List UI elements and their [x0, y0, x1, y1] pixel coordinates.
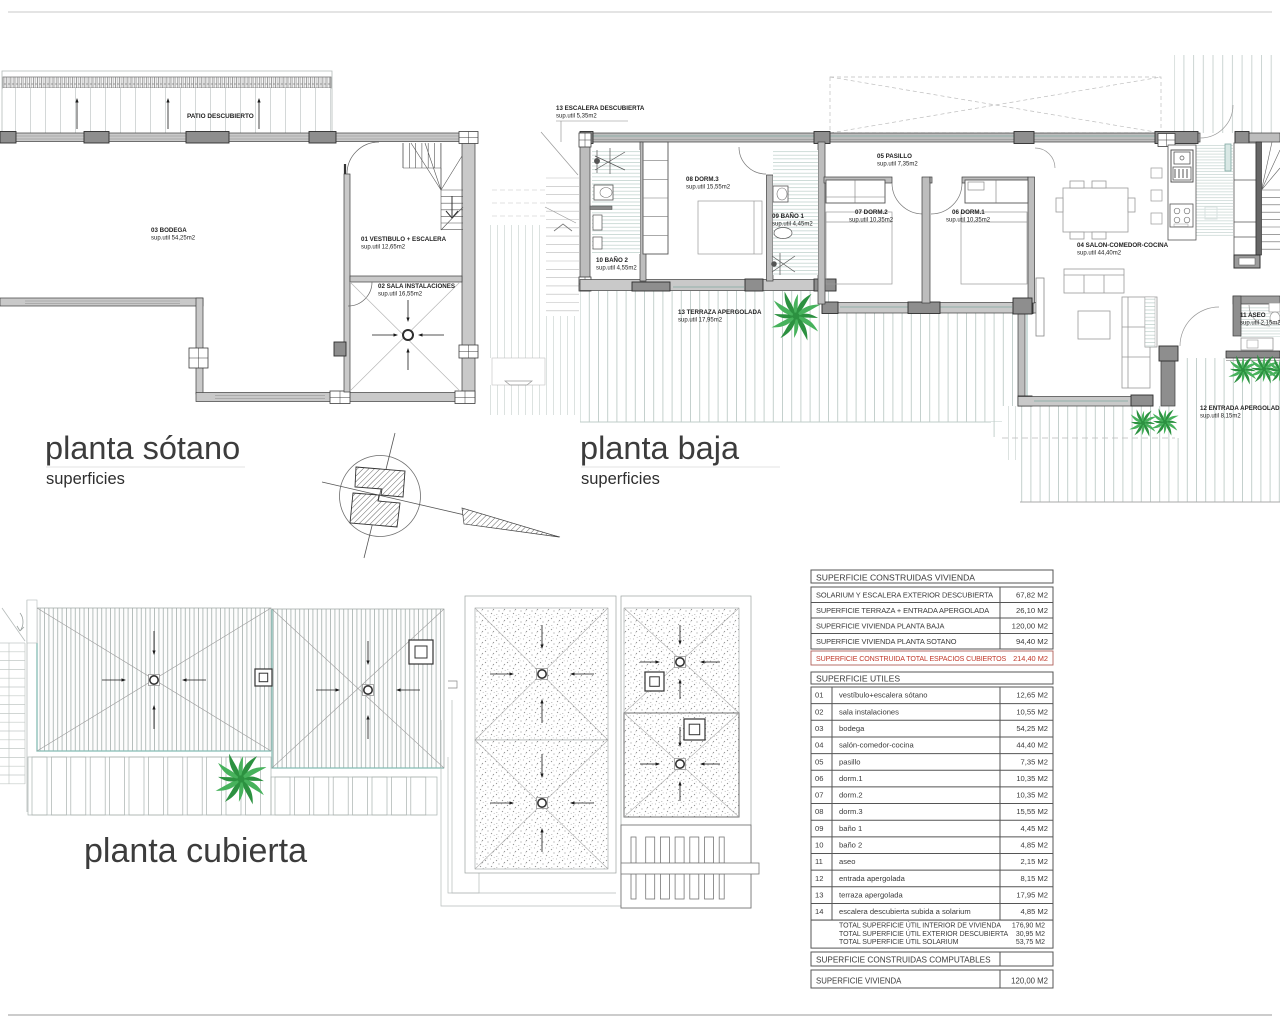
svg-text:baño 1: baño 1	[839, 824, 862, 833]
svg-text:10: 10	[815, 841, 823, 850]
svg-text:sup.util 10,35m2: sup.util 10,35m2	[946, 218, 991, 224]
svg-text:SUPERFICIE TERRAZA + ENTRADA A: SUPERFICIE TERRAZA + ENTRADA APERGOLADA	[816, 606, 989, 615]
svg-text:sup.util 15,55m2: sup.util 15,55m2	[686, 185, 731, 191]
svg-text:bodega: bodega	[839, 724, 865, 733]
svg-text:06 DORM.1: 06 DORM.1	[952, 209, 985, 216]
svg-text:planta cubierta: planta cubierta	[84, 832, 307, 870]
svg-text:08: 08	[815, 807, 823, 816]
svg-text:7,35 M2: 7,35 M2	[1021, 757, 1048, 766]
svg-text:10,35 M2: 10,35 M2	[1016, 791, 1048, 800]
svg-text:26,10 M2: 26,10 M2	[1016, 606, 1048, 615]
svg-text:54,25 M2: 54,25 M2	[1016, 724, 1048, 733]
svg-text:sup.util 4,45m2: sup.util 4,45m2	[772, 222, 813, 228]
svg-text:sup.util 16,55m2: sup.util 16,55m2	[378, 292, 423, 298]
svg-text:sup.util 54,25m2: sup.util 54,25m2	[151, 236, 196, 242]
svg-text:superficies: superficies	[581, 470, 660, 488]
svg-text:13 TERRAZA APERGOLADA: 13 TERRAZA APERGOLADA	[678, 309, 762, 316]
svg-text:sup.util 7,35m2: sup.util 7,35m2	[877, 162, 918, 168]
svg-text:10 BAÑO 2: 10 BAÑO 2	[596, 257, 629, 264]
svg-text:dorm.2: dorm.2	[839, 791, 863, 800]
svg-text:sup.util 5,35m2: sup.util 5,35m2	[556, 114, 597, 120]
svg-text:01 VESTIBULO + ESCALERA: 01 VESTIBULO + ESCALERA	[361, 236, 447, 243]
svg-text:30,95 M2: 30,95 M2	[1016, 931, 1045, 938]
svg-text:SUPERFICIE CONSTRUIDAS COMPUTA: SUPERFICIE CONSTRUIDAS COMPUTABLES	[816, 956, 991, 965]
svg-text:10,35 M2: 10,35 M2	[1016, 774, 1048, 783]
svg-text:67,82 M2: 67,82 M2	[1016, 591, 1048, 600]
svg-text:terraza apergolada: terraza apergolada	[839, 890, 904, 899]
svg-text:03: 03	[815, 724, 823, 733]
svg-text:2,15 M2: 2,15 M2	[1021, 857, 1048, 866]
svg-text:SUPERFICIE CONSTRUIDA TOTAL ES: SUPERFICIE CONSTRUIDA TOTAL ESPACIOS CUB…	[816, 655, 1007, 663]
svg-text:13 ESCALERA DESCUBIERTA: 13 ESCALERA DESCUBIERTA	[556, 105, 645, 112]
svg-text:03 BODEGA: 03 BODEGA	[151, 227, 187, 234]
svg-text:planta sótano: planta sótano	[45, 430, 240, 466]
svg-text:44,40 M2: 44,40 M2	[1016, 741, 1048, 750]
svg-text:15,55 M2: 15,55 M2	[1016, 807, 1048, 816]
svg-text:sup.util 17,95m2: sup.util 17,95m2	[678, 318, 723, 324]
svg-text:sup.util 8,15m2: sup.util 8,15m2	[1200, 414, 1241, 420]
svg-text:17,95 M2: 17,95 M2	[1016, 890, 1048, 899]
svg-text:TOTAL SUPERFICIE ÚTIL INTERIOR: TOTAL SUPERFICIE ÚTIL INTERIOR DE VIVIEN…	[839, 921, 1001, 930]
svg-text:8,15 M2: 8,15 M2	[1021, 874, 1048, 883]
svg-text:04: 04	[815, 741, 823, 750]
svg-text:SOLARIUM Y ESCALERA EXTERIOR D: SOLARIUM Y ESCALERA EXTERIOR DESCUBIERTA	[816, 591, 993, 600]
svg-text:sup.util 44,40m2: sup.util 44,40m2	[1077, 251, 1122, 257]
svg-text:SUPERFICIE UTILES: SUPERFICIE UTILES	[816, 674, 900, 684]
svg-text:02 SALA INSTALACIONES: 02 SALA INSTALACIONES	[378, 283, 455, 290]
svg-text:PATIO DESCUBIERTO: PATIO DESCUBIERTO	[187, 113, 254, 120]
svg-text:sup.util 4,55m2: sup.util 4,55m2	[596, 266, 637, 272]
svg-text:salón-comedor-cocina: salón-comedor-cocina	[839, 741, 914, 750]
svg-text:11 ASEO: 11 ASEO	[1240, 312, 1266, 319]
svg-text:SUPERFICIE VIVIENDA: SUPERFICIE VIVIENDA	[816, 977, 902, 986]
svg-text:214,40 M2: 214,40 M2	[1013, 654, 1048, 663]
svg-text:05 PASILLO: 05 PASILLO	[877, 153, 912, 160]
svg-text:94,40 M2: 94,40 M2	[1016, 637, 1048, 646]
svg-text:12 ENTRADA APERGOLADA: 12 ENTRADA APERGOLADA	[1200, 405, 1280, 412]
svg-text:sup.util 2,15m2: sup.util 2,15m2	[1240, 321, 1280, 327]
svg-text:176,90 M2: 176,90 M2	[1012, 923, 1045, 930]
svg-text:sala instalaciones: sala instalaciones	[839, 707, 899, 716]
svg-text:SUPERFICIE VIVIENDA PLANTA SOT: SUPERFICIE VIVIENDA PLANTA SOTANO	[816, 637, 957, 646]
svg-text:11: 11	[815, 857, 823, 866]
svg-text:planta baja: planta baja	[580, 430, 740, 466]
svg-text:14: 14	[815, 907, 823, 916]
svg-text:07: 07	[815, 791, 823, 800]
svg-text:aseo: aseo	[839, 857, 855, 866]
svg-text:escalera descubierta subida a: escalera descubierta subida a solarium	[839, 907, 971, 916]
svg-text:08 DORM.3: 08 DORM.3	[686, 176, 719, 183]
svg-text:13: 13	[815, 890, 823, 899]
svg-text:07 DORM.2: 07 DORM.2	[855, 209, 888, 216]
svg-text:entrada apergolada: entrada apergolada	[839, 874, 906, 883]
svg-text:4,85 M2: 4,85 M2	[1021, 907, 1048, 916]
svg-text:06: 06	[815, 774, 823, 783]
svg-text:pasillo: pasillo	[839, 757, 861, 766]
svg-text:TOTAL SUPERFICIE ÚTIL EXTERIOR: TOTAL SUPERFICIE ÚTIL EXTERIOR DESCUBIER…	[839, 929, 1009, 938]
svg-text:04 SALON-COMEDOR-COCINA: 04 SALON-COMEDOR-COCINA	[1077, 242, 1169, 249]
svg-text:vestíbulo+escalera sótano: vestíbulo+escalera sótano	[839, 691, 927, 700]
svg-text:120,00 M2: 120,00 M2	[1012, 622, 1048, 631]
svg-text:dorm.3: dorm.3	[839, 807, 863, 816]
svg-text:09: 09	[815, 824, 823, 833]
svg-text:SUPERFICIE CONSTRUIDAS VIVIEND: SUPERFICIE CONSTRUIDAS VIVIENDA	[816, 573, 975, 583]
svg-text:TOTAL SUPERFICIE ÚTIL SOLARIUM: TOTAL SUPERFICIE ÚTIL SOLARIUM	[839, 937, 959, 946]
svg-text:10,55 M2: 10,55 M2	[1016, 707, 1048, 716]
svg-text:SUPERFICIE VIVIENDA PLANTA BAJ: SUPERFICIE VIVIENDA PLANTA BAJA	[816, 622, 945, 631]
svg-text:dorm.1: dorm.1	[839, 774, 863, 783]
svg-text:12: 12	[815, 874, 823, 883]
svg-text:120,00 M2: 120,00 M2	[1011, 977, 1048, 986]
svg-text:sup.util 12,65m2: sup.util 12,65m2	[361, 245, 406, 251]
svg-text:05: 05	[815, 757, 823, 766]
svg-text:4,45 M2: 4,45 M2	[1021, 824, 1048, 833]
svg-text:01: 01	[815, 691, 823, 700]
svg-text:sup.util 10,35m2: sup.util 10,35m2	[849, 218, 894, 224]
svg-text:02: 02	[815, 707, 823, 716]
svg-text:4,85 M2: 4,85 M2	[1021, 841, 1048, 850]
svg-text:baño 2: baño 2	[839, 841, 862, 850]
svg-text:53,75 M2: 53,75 M2	[1016, 939, 1045, 946]
svg-text:12,65 M2: 12,65 M2	[1016, 691, 1048, 700]
svg-text:09 BAÑO 1: 09 BAÑO 1	[772, 213, 805, 220]
svg-text:superficies: superficies	[46, 470, 125, 488]
